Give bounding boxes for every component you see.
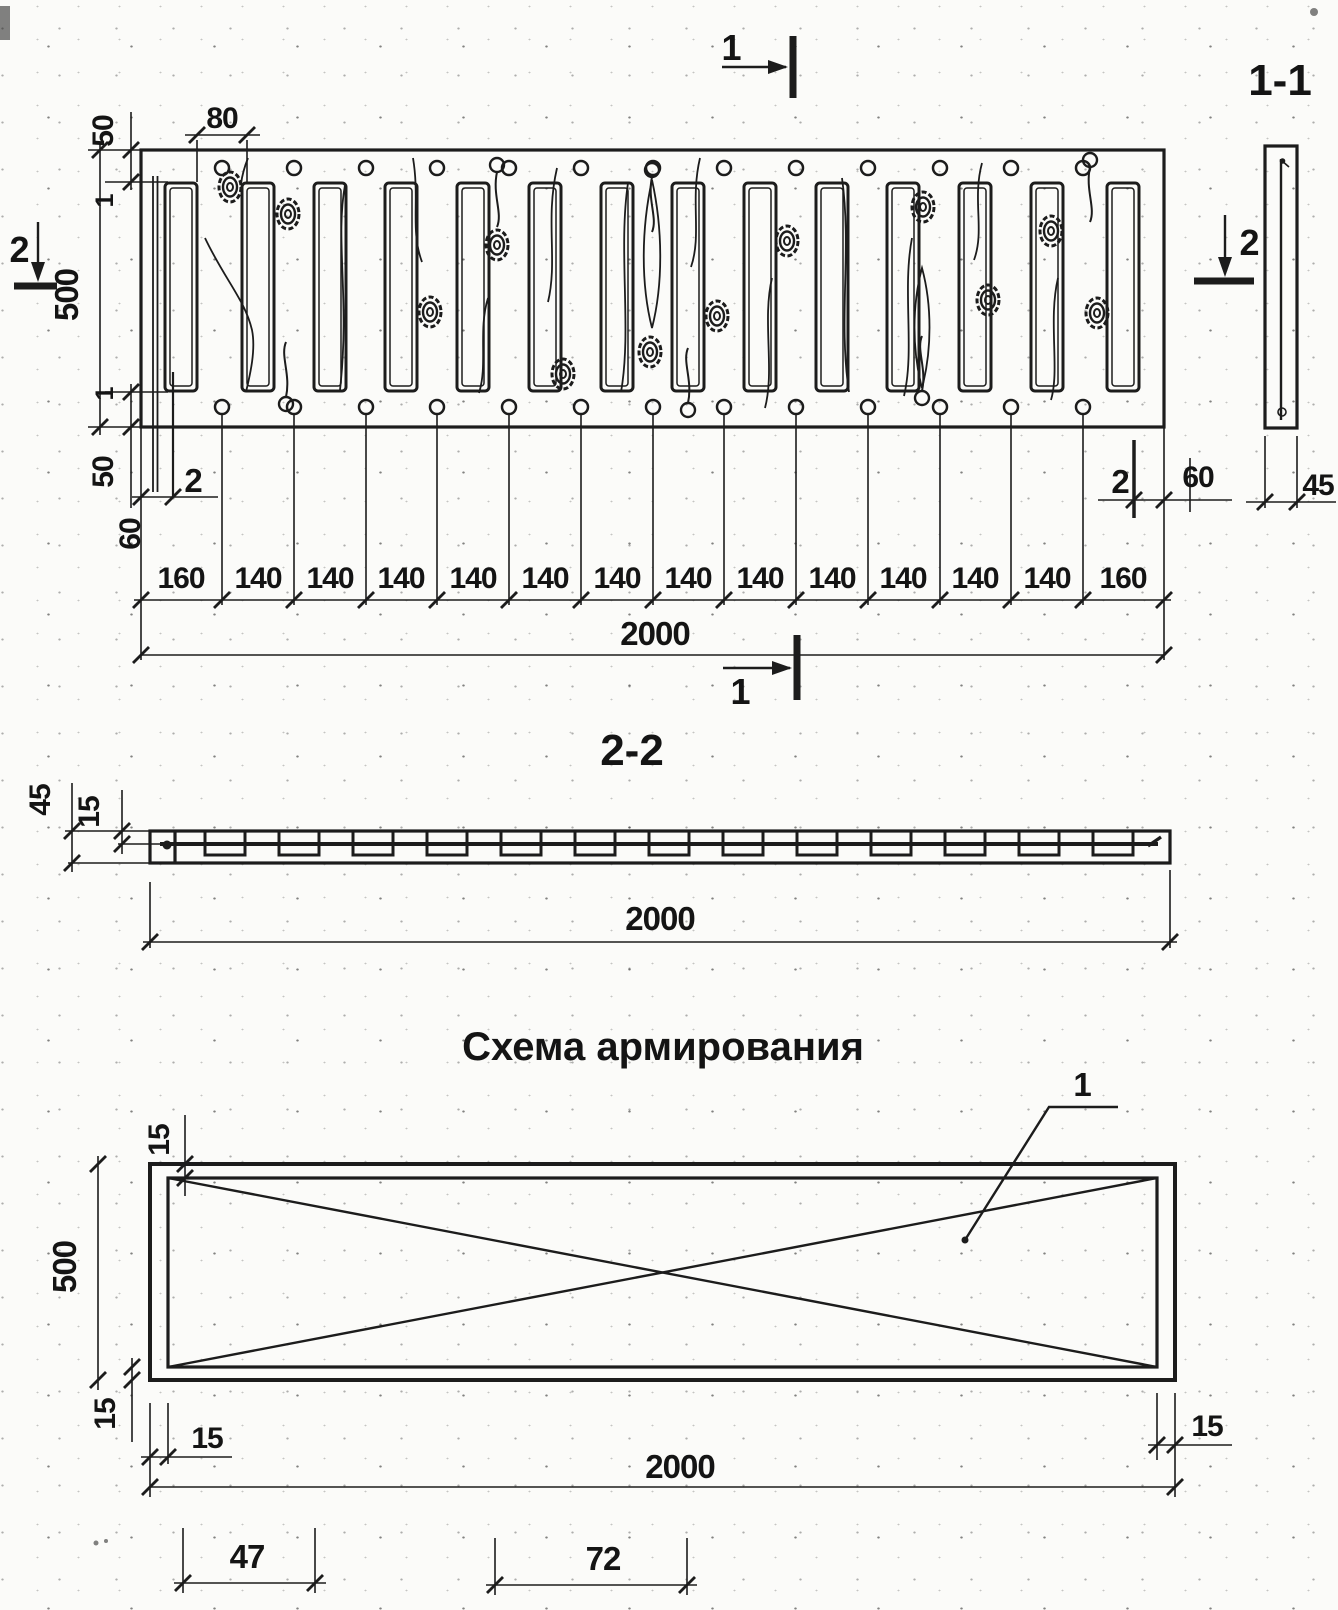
dim-label-1-top: 1 [91, 193, 119, 207]
dim-label-50-top: 50 [87, 115, 120, 147]
section-marker-1-bottom: 1 [723, 635, 797, 712]
svg-text:140: 140 [521, 562, 568, 595]
scheme-dim-lines [98, 1115, 1232, 1595]
section-label-1-top: 1 [721, 27, 741, 68]
svg-text:140: 140 [1023, 562, 1070, 595]
svg-text:140: 140 [736, 562, 783, 595]
hole [215, 161, 229, 175]
plan-view: 1 1 2 2 [9, 27, 1258, 712]
svg-text:140: 140 [306, 562, 353, 595]
dim-label-500: 500 [48, 269, 85, 321]
svg-text:140: 140 [951, 562, 998, 595]
dim-label-15-bottom: 15 [89, 1398, 122, 1430]
drawing-canvas: 1 1 2 2 [0, 0, 1338, 1610]
svg-text:160: 160 [1099, 562, 1146, 595]
dim-label-47: 47 [230, 1538, 265, 1575]
slot [165, 183, 197, 391]
dim-label-60-left: 60 [114, 518, 147, 550]
section-label-1-bottom: 1 [730, 671, 750, 712]
dim-label-total-2000: 2000 [645, 1448, 714, 1485]
wood-knot-icons [219, 172, 1108, 389]
view-title-1-1: 1-1 [1248, 56, 1312, 105]
section-2-2-view: 2-2 45 15 2000 [24, 726, 1178, 950]
section-2-2-dim-lines [65, 783, 1177, 948]
svg-text:140: 140 [449, 562, 496, 595]
svg-text:140: 140 [879, 562, 926, 595]
section-marker-2-right: 2 [1194, 215, 1259, 281]
svg-text:140: 140 [808, 562, 855, 595]
dim-label-15-top: 15 [143, 1124, 176, 1156]
dim-label-1-bottom: 1 [91, 386, 119, 400]
dim-label-total-2000: 2000 [625, 900, 694, 937]
scheme-dimension-ticks [90, 1156, 1183, 1593]
item-label-1: 1 [1073, 1066, 1091, 1103]
svg-text:160: 160 [157, 562, 204, 595]
dim-label-15: 15 [73, 796, 106, 828]
section-1-1-view: 1-1 45 [1246, 56, 1336, 510]
item-leader-1: 1 [962, 1066, 1119, 1244]
section-2-2-outline [150, 831, 1170, 863]
panel-outline [141, 150, 1164, 427]
teardrop-knot-icons [279, 153, 1097, 417]
dim-label-15-right: 15 [1191, 1410, 1223, 1443]
dim-label-50-bottom: 50 [87, 456, 120, 488]
dim-label-total-2000: 2000 [620, 615, 689, 652]
svg-text:140: 140 [377, 562, 424, 595]
dim-label-45: 45 [1302, 469, 1334, 502]
callout-label-2-left: 2 [184, 462, 202, 499]
panel-slots [165, 183, 1139, 391]
dim-label-45: 45 [24, 784, 57, 816]
wood-knot-icon [219, 172, 241, 202]
teardrop-knot-icon [490, 158, 504, 227]
section-label-2-left: 2 [9, 229, 28, 270]
scanned-drawing-page: 1 1 2 2 [0, 0, 1338, 1610]
scheme-title: Схема армирования [462, 1025, 864, 1069]
dim-label-80: 80 [206, 102, 238, 135]
section-label-2-right: 2 [1239, 222, 1258, 263]
callout-label-2-right: 2 [1111, 463, 1129, 500]
dim-label-15-left: 15 [191, 1422, 223, 1455]
reinforcement-scheme-view: Схема армирования 1 [46, 1025, 1232, 1595]
svg-text:140: 140 [664, 562, 711, 595]
segment-dim-labels: 160 140 140 140 140 140 140 140 140 140 … [157, 562, 1146, 595]
dim-label-72: 72 [586, 1540, 621, 1577]
svg-text:140: 140 [593, 562, 640, 595]
svg-text:140: 140 [234, 562, 281, 595]
dim-label-60-right: 60 [1182, 461, 1214, 494]
view-title-2-2: 2-2 [600, 726, 664, 775]
section-marker-1-top: 1 [721, 27, 793, 98]
dim-label-500: 500 [46, 1241, 83, 1293]
